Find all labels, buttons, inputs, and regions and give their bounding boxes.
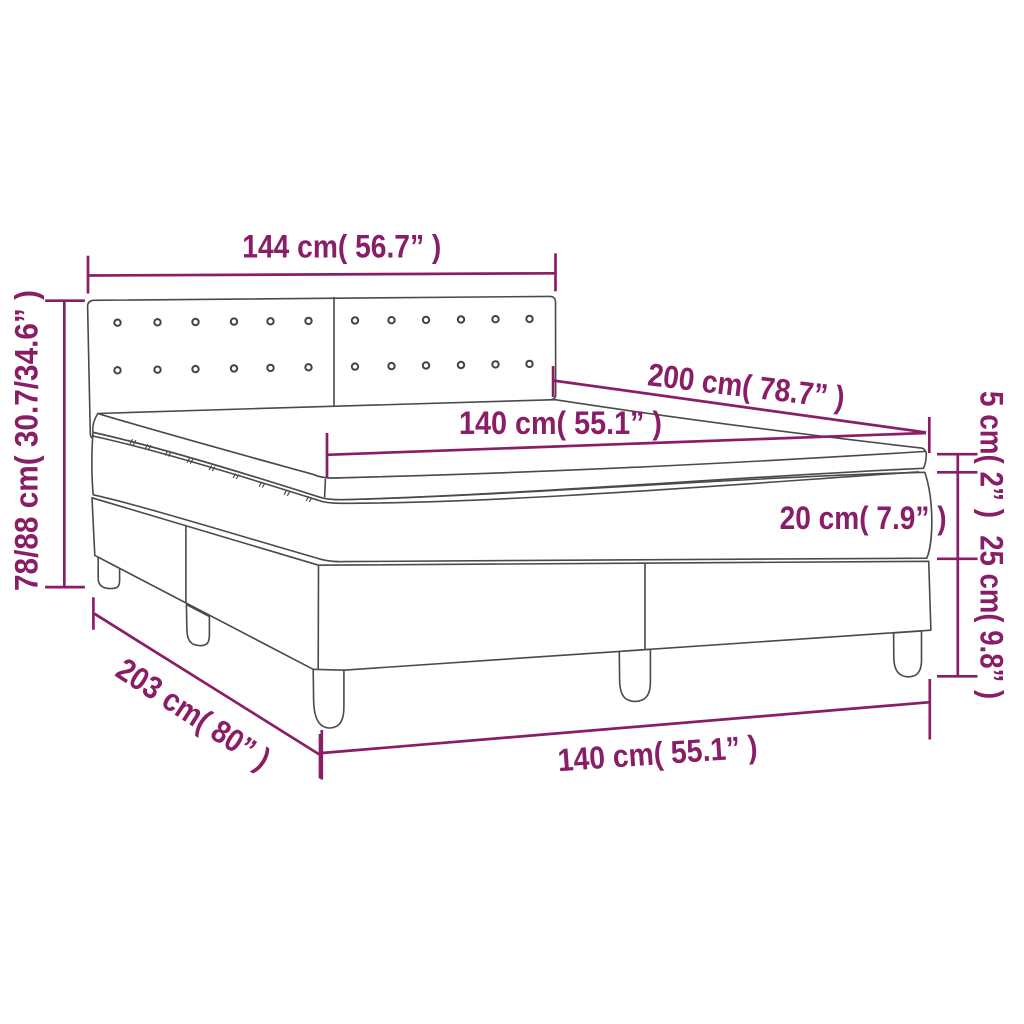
svg-text:140 cm( 55.1” ): 140 cm( 55.1” ) <box>459 405 662 441</box>
svg-text:144 cm( 56.7” ): 144 cm( 56.7” ) <box>242 229 441 265</box>
svg-text:20 cm( 7.9” ): 20 cm( 7.9” ) <box>780 500 947 536</box>
svg-text:140 cm( 55.1” ): 140 cm( 55.1” ) <box>557 728 759 778</box>
svg-text:25 cm( 9.8” ): 25 cm( 9.8” ) <box>974 535 1010 699</box>
svg-text:5 cm( 2” ): 5 cm( 2” ) <box>974 391 1010 518</box>
svg-text:78/88 cm( 30.7/34.6” ): 78/88 cm( 30.7/34.6” ) <box>9 290 45 591</box>
